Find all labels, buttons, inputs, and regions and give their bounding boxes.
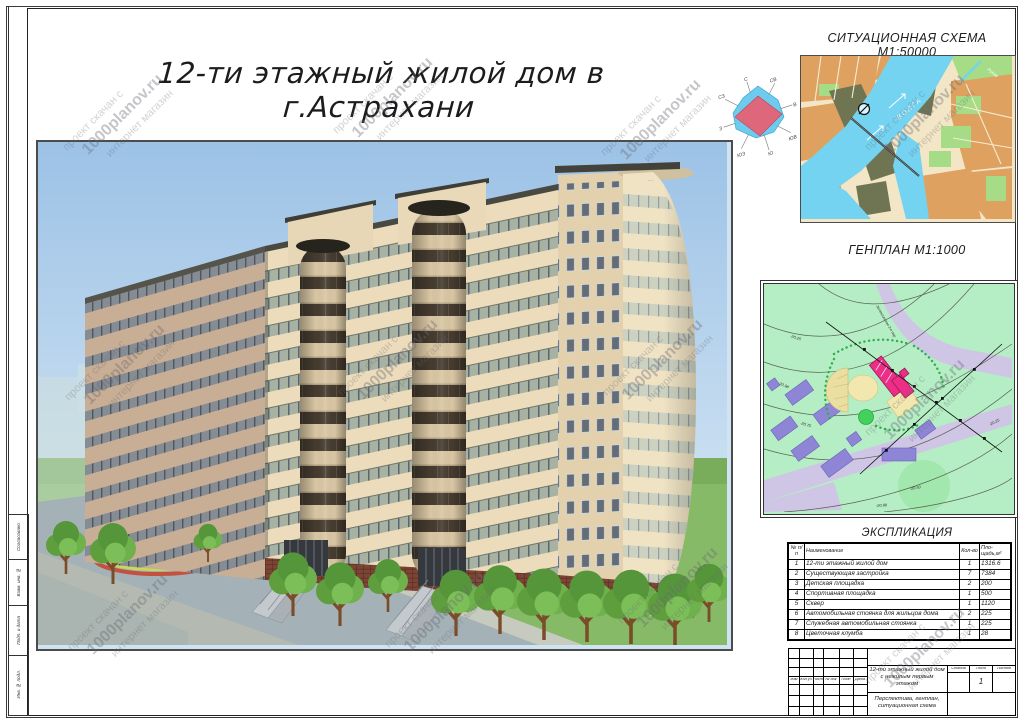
table-row: 8Цветочная клумба 128 xyxy=(788,630,1011,641)
table-row: 4Спортивная площадка 1500 xyxy=(788,590,1011,600)
tb-sheets-label: Листов xyxy=(993,667,1015,671)
perspective-render-frame xyxy=(36,140,733,651)
explication-title: ЭКСПЛИКАЦИЯ xyxy=(798,527,1016,539)
site-marker xyxy=(859,104,870,115)
genplan-map: -20.25 -20.98 -20.75 -20.50 -20.25 -20.9… xyxy=(760,280,1018,518)
col-header-num: № п/п xyxy=(788,543,805,560)
title-block: Изм Кол.уч Лист № док Подп Дата 12-ти эт… xyxy=(788,648,1016,716)
tb-header-koluch: Кол.уч xyxy=(799,678,813,682)
tb-project-name: 12-ти этажный жилой дом с нежилым первым… xyxy=(869,667,945,687)
svg-text:СЗ: СЗ xyxy=(718,93,726,101)
side-strip-cell: Согласовано xyxy=(9,515,28,559)
tb-header-izm: Изм xyxy=(789,678,799,682)
table-header-row: № п/п Наименование Кол-во Пло-щадь,м² xyxy=(788,543,1011,560)
svg-text:-20.98: -20.98 xyxy=(876,502,888,508)
svg-text:З: З xyxy=(718,126,723,133)
svg-text:ЮВ: ЮВ xyxy=(788,134,799,143)
svg-text:СВ: СВ xyxy=(769,76,778,84)
svg-text:Ю: Ю xyxy=(768,150,775,157)
svg-text:ЮЗ: ЮЗ xyxy=(737,151,747,158)
gost-side-strip: Согласовано Взам. инв. № Подп. и дата Ин… xyxy=(8,514,29,716)
tb-header-list: Лист xyxy=(813,678,823,682)
genplan-green-circle-large xyxy=(898,460,950,512)
drawing-sheet: Согласовано Взам. инв. № Подп. и дата Ин… xyxy=(0,0,1024,724)
tb-sheet-number: 1 xyxy=(970,677,992,686)
tb-stage-label: Стадия xyxy=(948,667,969,671)
tb-header-data: Дата xyxy=(853,678,867,682)
col-header-name: Наименование xyxy=(805,543,960,560)
building-render xyxy=(38,142,727,645)
page-title: 12-ти этажный жилой дом в г.Астрахани xyxy=(78,56,683,124)
side-strip-cell: Взам. инв. № xyxy=(9,559,28,605)
explication-table: № п/п Наименование Кол-во Пло-щадь,м² 11… xyxy=(787,542,1012,641)
tb-sheet-label: Лист xyxy=(970,667,992,671)
genplan-title: ГЕНПЛАН М1:1000 xyxy=(798,243,1016,257)
svg-text:В: В xyxy=(793,101,799,108)
table-row: 7Служебная автомобильная стоянка 1225 xyxy=(788,620,1011,630)
side-strip-cell: Инв. № подл. xyxy=(9,655,28,713)
tb-header-ndok: № док xyxy=(823,678,839,682)
table-row: 6Автомобильная стоянка для жильцов дома … xyxy=(788,610,1011,620)
side-strip-cell: Подп. и дата xyxy=(9,605,28,655)
table-row: 112-ти этажный жилой дом 11316.6 xyxy=(788,560,1011,570)
svg-text:С: С xyxy=(743,76,749,83)
table-row: 2Существующая застройка 77384 xyxy=(788,570,1011,580)
table-row: 5Сквер 11120 xyxy=(788,600,1011,610)
table-row: 3Детская площадка 2200 xyxy=(788,580,1011,590)
situational-scheme-map: ВОЛГА Рукав xyxy=(800,55,1016,223)
col-header-qty: Кол-во xyxy=(960,543,980,560)
tb-sheet-content: Перспектива, генплан, ситуационная схема xyxy=(869,696,945,710)
tb-header-podp: Подп xyxy=(839,678,853,682)
col-header-area: Пло-щадь,м² xyxy=(980,543,1012,560)
